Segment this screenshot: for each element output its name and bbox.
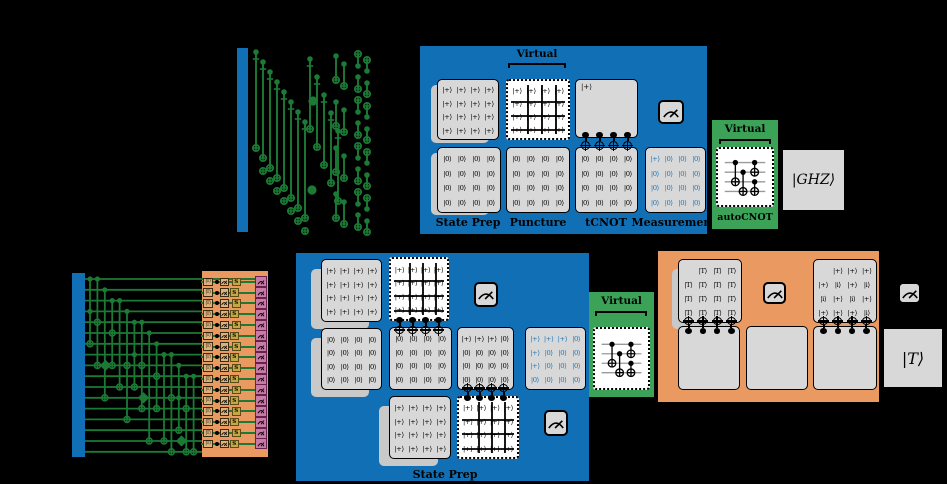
s-gate-box: S xyxy=(230,310,239,319)
cnot-control-icon xyxy=(820,328,827,334)
ket-label: |+⟩ xyxy=(470,127,481,135)
cnot-target-icon xyxy=(499,384,508,392)
zero-card-b1: |0⟩|0⟩|0⟩|0⟩|0⟩|0⟩|0⟩|0⟩|0⟩|0⟩|0⟩|0⟩|0⟩|… xyxy=(321,328,382,390)
cnot-target-icon xyxy=(487,384,496,392)
gate-box xyxy=(220,288,229,297)
ket-label: |0⟩ xyxy=(663,184,674,192)
ket-label: |+⟩ xyxy=(325,294,336,302)
ket-label: |0⟩ xyxy=(408,376,419,384)
ket-grid: |+⟩|+⟩|+⟩|+⟩|+⟩|+⟩|+⟩|+⟩|+⟩|+⟩|+⟩|+⟩|+⟩|… xyxy=(438,80,498,140)
ket-label: |+⟩ xyxy=(339,308,350,316)
autocnot-circuit-card-a xyxy=(716,147,774,207)
measure-box xyxy=(255,363,267,374)
ket-label: |+⟩ xyxy=(484,127,495,135)
ket-label: |0⟩ xyxy=(486,362,497,370)
ket-label: |0⟩ xyxy=(367,336,378,344)
measure-box xyxy=(255,384,267,395)
t-ket-box: |T⟩ xyxy=(203,278,213,287)
meter-glyph xyxy=(257,430,265,436)
t-ket-box: |T⟩ xyxy=(203,288,213,297)
ket-label: |+⟩ xyxy=(353,308,364,316)
ket-label: |0⟩ xyxy=(525,155,536,163)
cnot-control-icon xyxy=(215,291,219,295)
cnot-control-icon xyxy=(215,345,219,349)
ket-label: |T⟩ xyxy=(697,267,708,275)
ket-label: |0⟩ xyxy=(622,170,633,178)
ket-label: |0⟩ xyxy=(608,184,619,192)
ket-label: |+⟩ xyxy=(847,281,858,289)
ket-label: |0⟩ xyxy=(471,155,482,163)
ket-label: |0⟩ xyxy=(557,349,568,357)
ket-label: |i⟩ xyxy=(847,295,858,303)
measure-box xyxy=(255,352,267,363)
meter-glyph xyxy=(257,365,265,371)
ket-label: |+⟩ xyxy=(394,445,405,453)
autocnot-circuit xyxy=(718,149,772,205)
ket-label: |0⟩ xyxy=(436,362,447,370)
ket-label: |0⟩ xyxy=(442,184,453,192)
ket-label: |0⟩ xyxy=(608,155,619,163)
distill-gadget-row: |T⟩S xyxy=(203,417,267,428)
ket-label: |0⟩ xyxy=(540,184,551,192)
cnot-control-icon xyxy=(835,328,842,334)
ket-label: |0⟩ xyxy=(422,376,433,384)
ket-label: |+⟩ xyxy=(484,113,495,121)
ket-label: |+⟩ xyxy=(367,294,378,302)
gate-box xyxy=(220,375,229,384)
encoder-bar-b xyxy=(72,273,85,457)
t-ket-box: |T⟩ xyxy=(203,310,213,319)
cnot-control-icon xyxy=(215,280,219,284)
gate-box xyxy=(220,342,229,351)
cnot-control-icon xyxy=(476,395,483,401)
plus-card-b2: |+⟩|+⟩|+⟩|+⟩|+⟩|+⟩|+⟩|+⟩|+⟩|+⟩|+⟩|+⟩|+⟩|… xyxy=(389,396,451,459)
ket-label: |0⟩ xyxy=(461,349,472,357)
ket-label: |+⟩ xyxy=(470,113,481,121)
ket-label: |+⟩ xyxy=(367,267,378,275)
blank-patch-card xyxy=(678,326,740,390)
i-state-card: |+⟩|+⟩|+⟩|+⟩|i⟩|+⟩|i⟩|i⟩|+⟩|i⟩|+⟩|+⟩|+⟩|… xyxy=(813,259,877,323)
ket-label: |+⟩ xyxy=(442,100,453,108)
ket-label: |+⟩ xyxy=(474,335,485,343)
ket-label xyxy=(683,267,694,275)
ket-label: |0⟩ xyxy=(554,155,565,163)
ket-label: |0⟩ xyxy=(474,362,485,370)
ket-label: |0⟩ xyxy=(339,349,350,357)
ket-label: |0⟩ xyxy=(580,184,591,192)
s-gate-box: S xyxy=(230,375,239,384)
ket-label: |+⟩ xyxy=(557,335,568,343)
ket-label: |0⟩ xyxy=(456,199,467,207)
ket-label: |+⟩ xyxy=(394,404,405,412)
measurement-meter-icon-b2 xyxy=(544,410,568,436)
ket-label: |0⟩ xyxy=(325,336,336,344)
ket-label: |0⟩ xyxy=(408,349,419,357)
meter-glyph xyxy=(766,287,784,300)
s-gate-box: S xyxy=(232,299,241,308)
ket-label: |0⟩ xyxy=(471,184,482,192)
meter-glyph xyxy=(547,417,565,430)
meter-glyph xyxy=(221,279,228,285)
ket-label: |0⟩ xyxy=(529,376,540,384)
meter-glyph xyxy=(901,287,919,300)
ket-label: |0⟩ xyxy=(571,349,582,357)
ket-label: |+⟩ xyxy=(442,86,453,94)
meter-glyph xyxy=(477,288,495,301)
ket-label: |0⟩ xyxy=(474,349,485,357)
ket-label: |+⟩ xyxy=(325,308,336,316)
meter-glyph xyxy=(257,322,265,328)
measurement-meter-icon-b1 xyxy=(474,282,498,307)
ket-label: |0⟩ xyxy=(367,376,378,384)
cnot-target-icon xyxy=(819,317,828,325)
s-gate-box: S xyxy=(232,429,241,438)
ket-label: |0⟩ xyxy=(571,376,582,384)
measure-box xyxy=(255,406,267,417)
ket-label: |0⟩ xyxy=(394,349,405,357)
ket-label: |0⟩ xyxy=(691,184,702,192)
meter-glyph xyxy=(257,419,265,425)
stage-label-stateprep-b: State Prep xyxy=(413,468,478,481)
ket-label: |0⟩ xyxy=(353,363,364,371)
distill-gadget-row: |T⟩S xyxy=(203,395,267,406)
ket-label: |+⟩ xyxy=(442,127,453,135)
distillation-box-b: |T⟩|T⟩|T⟩|T⟩|T⟩|T⟩|T⟩|T⟩|T⟩|T⟩|T⟩|T⟩|T⟩|… xyxy=(658,251,879,402)
cnot-junction xyxy=(578,132,635,150)
tcnot-zero-card-a: |0⟩|0⟩|0⟩|0⟩|0⟩|0⟩|0⟩|0⟩|0⟩|0⟩|0⟩|0⟩|0⟩|… xyxy=(575,147,638,213)
ket-label: |+⟩ xyxy=(456,127,467,135)
cnot-target-icon xyxy=(581,141,590,150)
measure-box xyxy=(255,330,267,341)
ket-label: |0⟩ xyxy=(691,155,702,163)
cnot-control-icon xyxy=(215,409,219,413)
ket-label: |0⟩ xyxy=(649,170,660,178)
cnot-target-icon xyxy=(408,326,417,334)
s-gate-box: S xyxy=(230,288,239,297)
cnot-control-icon xyxy=(728,328,735,334)
ket-label: |0⟩ xyxy=(325,349,336,357)
distillation-encoding-circuit xyxy=(85,268,203,460)
t-ket-box: |T⟩ xyxy=(203,299,213,308)
ket-label: |0⟩ xyxy=(677,184,688,192)
cnot-control-icon xyxy=(488,395,495,401)
ket-label: |0⟩ xyxy=(677,199,688,207)
ket-label: |+⟩ xyxy=(367,281,378,289)
virtual-bracket xyxy=(719,139,771,144)
distill-gadget-row: |T⟩S xyxy=(203,287,267,298)
cnot-target-icon xyxy=(623,141,632,150)
measurement-result-card-a: |+⟩|0⟩|0⟩|0⟩|0⟩|0⟩|0⟩|0⟩|0⟩|0⟩|0⟩|0⟩|0⟩|… xyxy=(645,147,706,213)
ket-label: |0⟩ xyxy=(677,170,688,178)
ket-label: |0⟩ xyxy=(540,170,551,178)
s-gate-box: S xyxy=(230,353,239,362)
ket-label: |+⟩ xyxy=(543,335,554,343)
cnot-control-icon xyxy=(215,399,219,403)
lattice-overlay xyxy=(459,398,517,457)
meter-glyph xyxy=(257,344,265,350)
ket-label: |+⟩ xyxy=(408,445,419,453)
distill-gadget-row: |T⟩S xyxy=(203,352,267,363)
cnot-target-icon xyxy=(833,317,842,325)
ket-grid: |+⟩|+⟩|+⟩|+⟩|+⟩|+⟩|+⟩|+⟩|+⟩|+⟩|+⟩|+⟩|+⟩|… xyxy=(322,260,381,322)
ket-label: |+⟩ xyxy=(861,295,872,303)
ket-label: |+⟩ xyxy=(861,267,872,275)
ket-grid: |+⟩|+⟩|+⟩|0⟩|+⟩|0⟩|0⟩|0⟩|+⟩|0⟩|0⟩|0⟩|0⟩|… xyxy=(526,328,585,390)
stage-label-tcnot: tCNOT xyxy=(585,216,627,229)
ket-label: |0⟩ xyxy=(525,170,536,178)
ket-label: |+⟩ xyxy=(408,404,419,412)
t-ket-box: |T⟩ xyxy=(203,396,213,405)
ket-label: |0⟩ xyxy=(580,170,591,178)
ket-label: |+⟩ xyxy=(422,418,433,426)
ket-label: |+⟩ xyxy=(353,294,364,302)
meter-glyph xyxy=(221,376,228,382)
s-gate-box: S xyxy=(230,396,239,405)
ket-label: |+⟩ xyxy=(436,445,447,453)
ket-label: |0⟩ xyxy=(554,184,565,192)
distill-gadget-row: |T⟩S xyxy=(203,298,267,309)
ket-label: |T⟩ xyxy=(697,295,708,303)
ket-label: |+⟩ xyxy=(470,100,481,108)
ket-label xyxy=(818,267,829,275)
mixed-card-b: |+⟩|+⟩|+⟩|0⟩|0⟩|0⟩|0⟩|0⟩|0⟩|0⟩|0⟩|0⟩|0⟩|… xyxy=(457,327,514,390)
cnot-target-icon xyxy=(684,317,693,325)
meter-glyph xyxy=(221,441,228,447)
t-ket-box: |T⟩ xyxy=(203,375,213,384)
ket-label: |+⟩ xyxy=(832,295,843,303)
ket-label: |0⟩ xyxy=(422,362,433,370)
ket-label: |+⟩ xyxy=(325,267,336,275)
virtual-label-autocnot-b: Virtual xyxy=(589,295,654,307)
ket-label: |0⟩ xyxy=(622,184,633,192)
ket-label: |+⟩ xyxy=(581,83,592,91)
ket-label: |0⟩ xyxy=(408,362,419,370)
ket-label: |0⟩ xyxy=(485,155,496,163)
ket-label: |0⟩ xyxy=(442,155,453,163)
ket-label: |+⟩ xyxy=(339,281,350,289)
ket-label: |0⟩ xyxy=(436,349,447,357)
stateprep-zero-card-a: |0⟩|0⟩|0⟩|0⟩|0⟩|0⟩|0⟩|0⟩|0⟩|0⟩|0⟩|0⟩|0⟩|… xyxy=(437,147,501,213)
ket-label: |+⟩ xyxy=(436,404,447,412)
ket-grid: |+⟩|+⟩|+⟩|0⟩|0⟩|0⟩|0⟩|0⟩|0⟩|0⟩|0⟩|0⟩|0⟩|… xyxy=(458,328,513,390)
meter-glyph xyxy=(662,106,680,119)
ket-label: |0⟩ xyxy=(622,199,633,207)
meter-glyph xyxy=(221,398,228,404)
ket-label: |+⟩ xyxy=(436,418,447,426)
ket-label: |T⟩ xyxy=(726,267,737,275)
cnot-control-icon xyxy=(863,328,870,334)
ket-label: |0⟩ xyxy=(485,184,496,192)
measure-box xyxy=(255,428,267,439)
ket-label: |+⟩ xyxy=(394,431,405,439)
measurement-meter-icon-o1 xyxy=(763,282,786,304)
ket-label: |+⟩ xyxy=(353,281,364,289)
meter-glyph xyxy=(221,365,228,371)
measure-box xyxy=(255,298,267,309)
cnot-control-icon xyxy=(215,323,219,327)
ket-label: |+⟩ xyxy=(394,418,405,426)
cnot-control-icon xyxy=(215,355,219,359)
meter-glyph xyxy=(221,430,228,436)
autocnot-box-a: Virtual autoCNOT xyxy=(712,120,778,229)
ket-label: |i⟩ xyxy=(818,295,829,303)
gate-box xyxy=(220,278,229,287)
measure-box xyxy=(255,395,267,406)
cnot-target-icon xyxy=(727,317,736,325)
ket-grid: |+⟩|0⟩|0⟩|0⟩|0⟩|0⟩|0⟩|0⟩|0⟩|0⟩|0⟩|0⟩|0⟩|… xyxy=(646,148,705,213)
meter-glyph xyxy=(257,441,265,447)
s-gate-box: S xyxy=(232,386,241,395)
ket-grid: |0⟩|0⟩|0⟩|0⟩|0⟩|0⟩|0⟩|0⟩|0⟩|0⟩|0⟩|0⟩|0⟩|… xyxy=(576,148,637,213)
cnot-target-icon xyxy=(421,326,430,334)
measurement-meter-icon-o2 xyxy=(898,282,921,304)
ket-label: |0⟩ xyxy=(353,376,364,384)
gate-box xyxy=(220,353,229,362)
gate-box xyxy=(220,429,229,438)
ket-grid: |0⟩|0⟩|0⟩|0⟩|0⟩|0⟩|0⟩|0⟩|0⟩|0⟩|0⟩|0⟩|0⟩|… xyxy=(507,148,569,213)
encoder-bar-a xyxy=(237,48,248,232)
meter-glyph xyxy=(221,300,228,306)
measure-box xyxy=(255,309,267,320)
ket-label: |0⟩ xyxy=(456,170,467,178)
ket-label: |0⟩ xyxy=(499,362,510,370)
cnot-control-icon xyxy=(215,334,219,338)
ket-label: |0⟩ xyxy=(325,376,336,384)
ket-label: |0⟩ xyxy=(525,184,536,192)
stage-label-stateprep-a: State Prep xyxy=(436,216,501,229)
ket-label: |+⟩ xyxy=(529,349,540,357)
ket-label: |0⟩ xyxy=(394,376,405,384)
t-ket-box: |T⟩ xyxy=(203,418,213,427)
cnot-control-icon xyxy=(215,431,219,435)
ket-label: |0⟩ xyxy=(485,170,496,178)
distill-gadget-row: |T⟩S xyxy=(203,384,267,395)
ket-label: |0⟩ xyxy=(511,170,522,178)
distill-gadget-row: |T⟩S xyxy=(203,363,267,374)
meter-glyph xyxy=(221,290,228,296)
tcnot-top-card-a: |+⟩ xyxy=(575,79,638,138)
ket-label: |0⟩ xyxy=(394,362,405,370)
ket-label: |+⟩ xyxy=(456,86,467,94)
meter-glyph xyxy=(221,419,228,425)
ket-label: |+⟩ xyxy=(649,155,660,163)
ket-label: |0⟩ xyxy=(543,349,554,357)
ket-label: |0⟩ xyxy=(580,155,591,163)
meter-glyph xyxy=(257,279,265,285)
ket-label: |T⟩ xyxy=(697,281,708,289)
ket-label: |0⟩ xyxy=(540,199,551,207)
ket-label: |T⟩ xyxy=(712,267,723,275)
ket-label: |0⟩ xyxy=(442,199,453,207)
stateprep-plus-card-a: |+⟩|+⟩|+⟩|+⟩|+⟩|+⟩|+⟩|+⟩|+⟩|+⟩|+⟩|+⟩|+⟩|… xyxy=(437,79,499,140)
ket-label: |i⟩ xyxy=(861,281,872,289)
ket-label: |0⟩ xyxy=(677,155,688,163)
t-state-card: |T⟩|T⟩|T⟩|T⟩|T⟩|T⟩|T⟩|T⟩|T⟩|T⟩|T⟩|T⟩|T⟩|… xyxy=(678,259,742,323)
virtual-bracket xyxy=(595,311,647,316)
cnot-target-icon xyxy=(713,317,722,325)
s-gate-box: S xyxy=(232,407,241,416)
measure-box xyxy=(255,341,267,352)
ket-label: |+⟩ xyxy=(456,100,467,108)
ket-label: |0⟩ xyxy=(571,335,582,343)
lattice-overlay xyxy=(391,259,447,319)
ket-label: |0⟩ xyxy=(594,155,605,163)
ket-label: |0⟩ xyxy=(554,170,565,178)
ket-label: |0⟩ xyxy=(511,199,522,207)
cnot-control-icon xyxy=(464,395,471,401)
ket-label: |+⟩ xyxy=(353,267,364,275)
cnot-control-icon xyxy=(215,301,219,305)
cnot-control-icon xyxy=(700,328,707,334)
ket-label: |0⟩ xyxy=(608,170,619,178)
lattice-overlay xyxy=(508,81,568,138)
t-ket-box: |T⟩ xyxy=(203,342,213,351)
t-ket-box: |T⟩ xyxy=(203,332,213,341)
ket-label: |0⟩ xyxy=(436,335,447,343)
cnot-control-icon xyxy=(714,328,721,334)
cnot-junction xyxy=(816,317,874,334)
s-gate-box: S xyxy=(232,321,241,330)
ket-label: |0⟩ xyxy=(543,376,554,384)
t-output-box: |T⟩ xyxy=(881,326,945,390)
ket-label: |+⟩ xyxy=(408,418,419,426)
ket-label: |0⟩ xyxy=(461,362,472,370)
ket-label: |0⟩ xyxy=(325,363,336,371)
ket-label: |0⟩ xyxy=(442,170,453,178)
distill-gadget-row: |T⟩S xyxy=(203,320,267,331)
factory-box-b: |+⟩|+⟩|+⟩|+⟩|+⟩|+⟩|+⟩|+⟩|+⟩|+⟩|+⟩|+⟩|+⟩|… xyxy=(296,253,589,481)
ket-label: |0⟩ xyxy=(525,199,536,207)
ket-label: |T⟩ xyxy=(726,295,737,303)
virtual-lattice-card-b1: |+⟩|+⟩|+⟩|+⟩|+⟩|+⟩|+⟩|+⟩|+⟩|+⟩|+⟩|+⟩|+⟩|… xyxy=(389,257,449,321)
ket-label: |+⟩ xyxy=(367,308,378,316)
ket-label: |+⟩ xyxy=(484,86,495,94)
ghz-encoding-circuit xyxy=(250,44,420,240)
distill-gadget-row: |T⟩S xyxy=(203,309,267,320)
meter-glyph xyxy=(221,344,228,350)
ket-label: |0⟩ xyxy=(485,199,496,207)
s-gate-box: S xyxy=(230,418,239,427)
t-ket-box: |T⟩ xyxy=(203,364,213,373)
cnot-control-icon xyxy=(500,395,507,401)
ket-grid: |0⟩|0⟩|0⟩|0⟩|0⟩|0⟩|0⟩|0⟩|0⟩|0⟩|0⟩|0⟩|0⟩|… xyxy=(390,328,451,390)
ket-label: |0⟩ xyxy=(649,184,660,192)
ket-label: |0⟩ xyxy=(594,199,605,207)
meter-glyph xyxy=(257,376,265,382)
stage-label-puncture: Puncture xyxy=(510,216,567,229)
gate-box xyxy=(220,440,229,449)
s-gate-box: S xyxy=(230,440,239,449)
ket-label: |0⟩ xyxy=(339,376,350,384)
gate-box xyxy=(220,396,229,405)
ket-grid: |T⟩|T⟩|T⟩|T⟩|T⟩|T⟩|T⟩|T⟩|T⟩|T⟩|T⟩|T⟩|T⟩|… xyxy=(679,260,741,323)
blue-result-card-b: |+⟩|+⟩|+⟩|0⟩|+⟩|0⟩|0⟩|0⟩|+⟩|0⟩|0⟩|0⟩|0⟩|… xyxy=(525,327,586,390)
meter-glyph xyxy=(221,408,228,414)
ket-label: |0⟩ xyxy=(408,335,419,343)
cnot-control-icon xyxy=(215,388,219,392)
puncture-virtual-card-a: |+⟩|+⟩|+⟩|+⟩|+⟩|+⟩|+⟩|+⟩|+⟩|+⟩|+⟩|+⟩|+⟩|… xyxy=(506,79,570,140)
plus-card-b1: |+⟩|+⟩|+⟩|+⟩|+⟩|+⟩|+⟩|+⟩|+⟩|+⟩|+⟩|+⟩|+⟩|… xyxy=(321,259,382,322)
ket-label: |0⟩ xyxy=(622,155,633,163)
puncture-zero-card-a: |0⟩|0⟩|0⟩|0⟩|0⟩|0⟩|0⟩|0⟩|0⟩|0⟩|0⟩|0⟩|0⟩|… xyxy=(506,147,570,213)
meter-glyph xyxy=(257,398,265,404)
ket-label: |0⟩ xyxy=(394,335,405,343)
cnot-target-icon xyxy=(862,317,871,325)
figure-canvas: Virtual |+⟩|+⟩|+⟩|+⟩|+⟩|+⟩|+⟩|+⟩|+⟩|+⟩|+… xyxy=(0,0,947,484)
autocnot-box-b: Virtual xyxy=(589,292,654,397)
ket-label: |0⟩ xyxy=(456,155,467,163)
t-ket-box: |T⟩ xyxy=(203,429,213,438)
